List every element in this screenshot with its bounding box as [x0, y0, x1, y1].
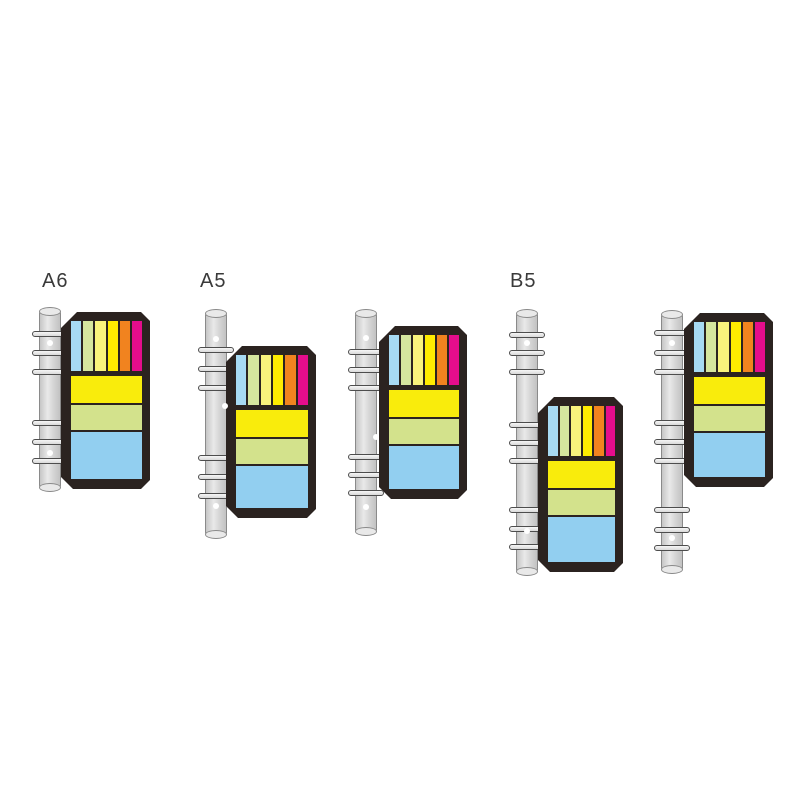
spine-hole [213, 336, 219, 342]
spine-bottom-cap [661, 565, 683, 574]
sticky-pad-green [236, 439, 308, 464]
sticky-pad-blue [71, 432, 142, 479]
index-tab-blue [71, 321, 81, 371]
index-tab-pale-yellow [95, 321, 105, 371]
binder-ring [654, 527, 690, 533]
spine-hole [222, 403, 228, 409]
spine-hole [524, 340, 530, 346]
spine-hole [213, 503, 219, 509]
index-tab-magenta [298, 355, 308, 405]
spine-hole [669, 535, 675, 541]
sticky-pad-blue [389, 446, 459, 489]
index-tab-green [83, 321, 93, 371]
notes-panel [684, 313, 773, 487]
index-tab-strip [389, 335, 459, 385]
spine-top-cap [205, 309, 227, 318]
panel-content [548, 406, 615, 562]
spine-hole [524, 528, 530, 534]
sticky-pad-yellow [694, 377, 765, 404]
spine-hole [669, 340, 675, 346]
spine-top-cap [516, 309, 538, 318]
index-tab-strip [694, 322, 765, 372]
index-tab-blue [548, 406, 558, 456]
binder-ring [348, 454, 384, 460]
spine-hole [363, 335, 369, 341]
index-tab-yellow [583, 406, 593, 456]
sticky-pad-yellow [71, 376, 142, 403]
binder-ring [509, 332, 545, 338]
index-tab-green [706, 322, 716, 372]
index-tab-yellow [425, 335, 435, 385]
spine-top-cap [355, 309, 377, 318]
index-tab-magenta [606, 406, 616, 456]
index-tab-yellow [731, 322, 741, 372]
index-tab-pale-yellow [413, 335, 423, 385]
panel-content [236, 355, 308, 508]
index-tab-blue [389, 335, 399, 385]
binder-ring [348, 490, 384, 496]
index-tab-blue [694, 322, 704, 372]
spine-bottom-cap [355, 527, 377, 536]
binder-ring [509, 369, 545, 375]
index-tab-orange [743, 322, 753, 372]
binder-ring [509, 350, 545, 356]
spine-hole [373, 434, 379, 440]
index-tab-green [401, 335, 411, 385]
index-tab-yellow [273, 355, 283, 405]
binder-ring [654, 507, 690, 513]
index-tab-pale-yellow [571, 406, 581, 456]
index-tab-blue [236, 355, 246, 405]
spine-bottom-cap [205, 530, 227, 539]
index-tab-strip [548, 406, 615, 456]
binder-ring [348, 367, 384, 373]
index-tab-yellow [108, 321, 118, 371]
spine-bottom-cap [516, 567, 538, 576]
notes-panel [379, 326, 467, 499]
spine-top-cap [661, 310, 683, 319]
panel-content [71, 321, 142, 479]
index-tab-green [560, 406, 570, 456]
binder-ring [348, 349, 384, 355]
sticky-pad-yellow [389, 390, 459, 417]
sticky-pad-yellow [236, 410, 308, 437]
spine-bottom-cap [39, 483, 61, 492]
spine-hole [363, 504, 369, 510]
panel-content [389, 335, 459, 489]
notes-panel [61, 312, 150, 489]
index-tab-magenta [755, 322, 765, 372]
index-tab-magenta [449, 335, 459, 385]
index-tab-orange [594, 406, 604, 456]
sticky-pad-green [71, 405, 142, 430]
sticky-pad-green [694, 406, 765, 431]
sticky-pad-green [548, 490, 615, 515]
panel-content [694, 322, 765, 477]
index-tab-pale-yellow [261, 355, 271, 405]
index-tab-orange [120, 321, 130, 371]
index-tab-orange [437, 335, 447, 385]
sticky-pad-blue [236, 466, 308, 508]
binder-ring [348, 472, 384, 478]
sticky-pad-blue [548, 517, 615, 562]
size-label-a5: A5 [200, 271, 226, 291]
size-label-a6: A6 [42, 271, 68, 291]
notes-panel [538, 397, 623, 572]
binder-ring [198, 347, 234, 353]
notes-panel [226, 346, 316, 518]
product-illustration: A6A5B5 [0, 0, 800, 800]
binder-spine [355, 310, 377, 535]
index-tab-strip [71, 321, 142, 371]
index-tab-pale-yellow [718, 322, 728, 372]
sticky-pad-yellow [548, 461, 615, 488]
sticky-pad-blue [694, 433, 765, 477]
index-tab-green [248, 355, 258, 405]
size-label-b5: B5 [510, 271, 536, 291]
spine-hole [47, 450, 53, 456]
index-tab-strip [236, 355, 308, 405]
index-tab-orange [285, 355, 295, 405]
binder-ring [654, 545, 690, 551]
spine-top-cap [39, 307, 61, 316]
spine-hole [47, 340, 53, 346]
sticky-pad-green [389, 419, 459, 444]
index-tab-magenta [132, 321, 142, 371]
binder-ring [348, 385, 384, 391]
